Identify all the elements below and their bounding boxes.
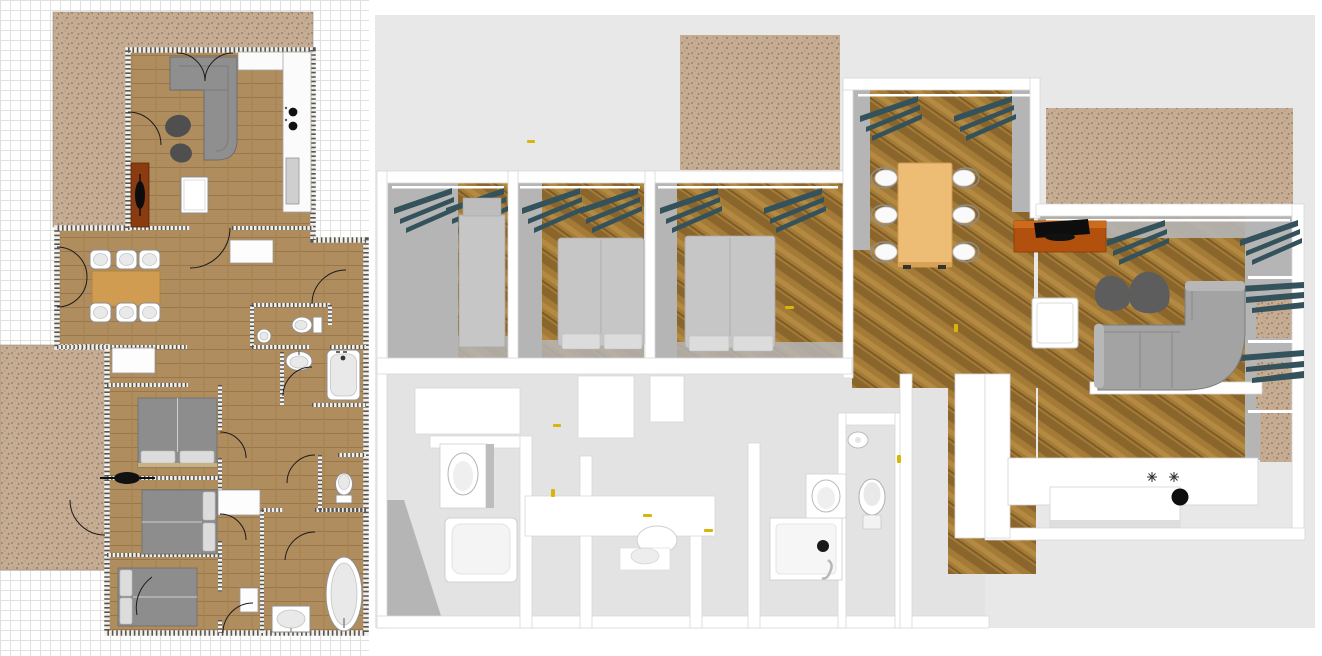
double-bed-1-2d[interactable] [138, 398, 217, 467]
terrace-west-2d[interactable] [0, 345, 107, 570]
double-bed-2-2d[interactable] [142, 490, 217, 554]
vanity-sink-2-3d[interactable] [806, 474, 846, 518]
shower-tray-3d[interactable] [770, 518, 842, 580]
pillow [120, 570, 132, 596]
kitchen-3d[interactable] [1008, 458, 1258, 527]
double-bed-3-2d[interactable] [118, 568, 197, 626]
tv-cabinet-3d[interactable] [1014, 219, 1106, 252]
kitchen-window [1260, 396, 1296, 462]
coffee-table-2d[interactable] [181, 177, 208, 213]
pillow [203, 523, 215, 551]
dining-table-3d[interactable] [898, 163, 952, 269]
terrace-a-3d[interactable] [680, 35, 840, 170]
toilet-3d[interactable] [859, 479, 885, 529]
pillow [203, 492, 215, 520]
plan-2d[interactable] [0, 12, 366, 633]
burner-icon [289, 122, 298, 131]
cooktop-burner-icon [1169, 472, 1179, 482]
view-3d[interactable] [377, 35, 1305, 628]
floorplan-canvas[interactable] [0, 0, 1322, 656]
floorplan-app [0, 0, 1322, 656]
vanity-sink-1-3d[interactable] [440, 444, 494, 508]
coffee-table-3d[interactable] [1032, 298, 1078, 348]
shower-drain [817, 540, 829, 552]
pillow [180, 451, 214, 463]
double-bed-3-3d[interactable] [685, 236, 775, 351]
bathtub-3d[interactable] [445, 518, 517, 582]
terrace-b-3d[interactable] [1046, 108, 1293, 205]
tv-cabinet-2d[interactable] [131, 163, 149, 227]
pillow [120, 598, 132, 624]
toilet-2d[interactable] [292, 317, 322, 333]
window-view [1256, 296, 1292, 338]
oval-bathtub-2d[interactable] [326, 557, 362, 631]
toilet-2-2d[interactable] [336, 473, 353, 503]
dining-table-2d[interactable] [92, 271, 160, 306]
cooktop-burner-icon [1147, 472, 1157, 482]
pillow [141, 451, 175, 463]
wardrobe-3d[interactable] [459, 198, 505, 347]
bathtub-2d[interactable] [327, 350, 360, 400]
kitchen-sink-2d [286, 158, 299, 204]
burner-icon [289, 108, 298, 117]
double-bed-2-3d[interactable] [558, 238, 644, 349]
washbasin-2-2d[interactable] [272, 606, 310, 632]
kitchen-sink-3d [1172, 489, 1189, 506]
